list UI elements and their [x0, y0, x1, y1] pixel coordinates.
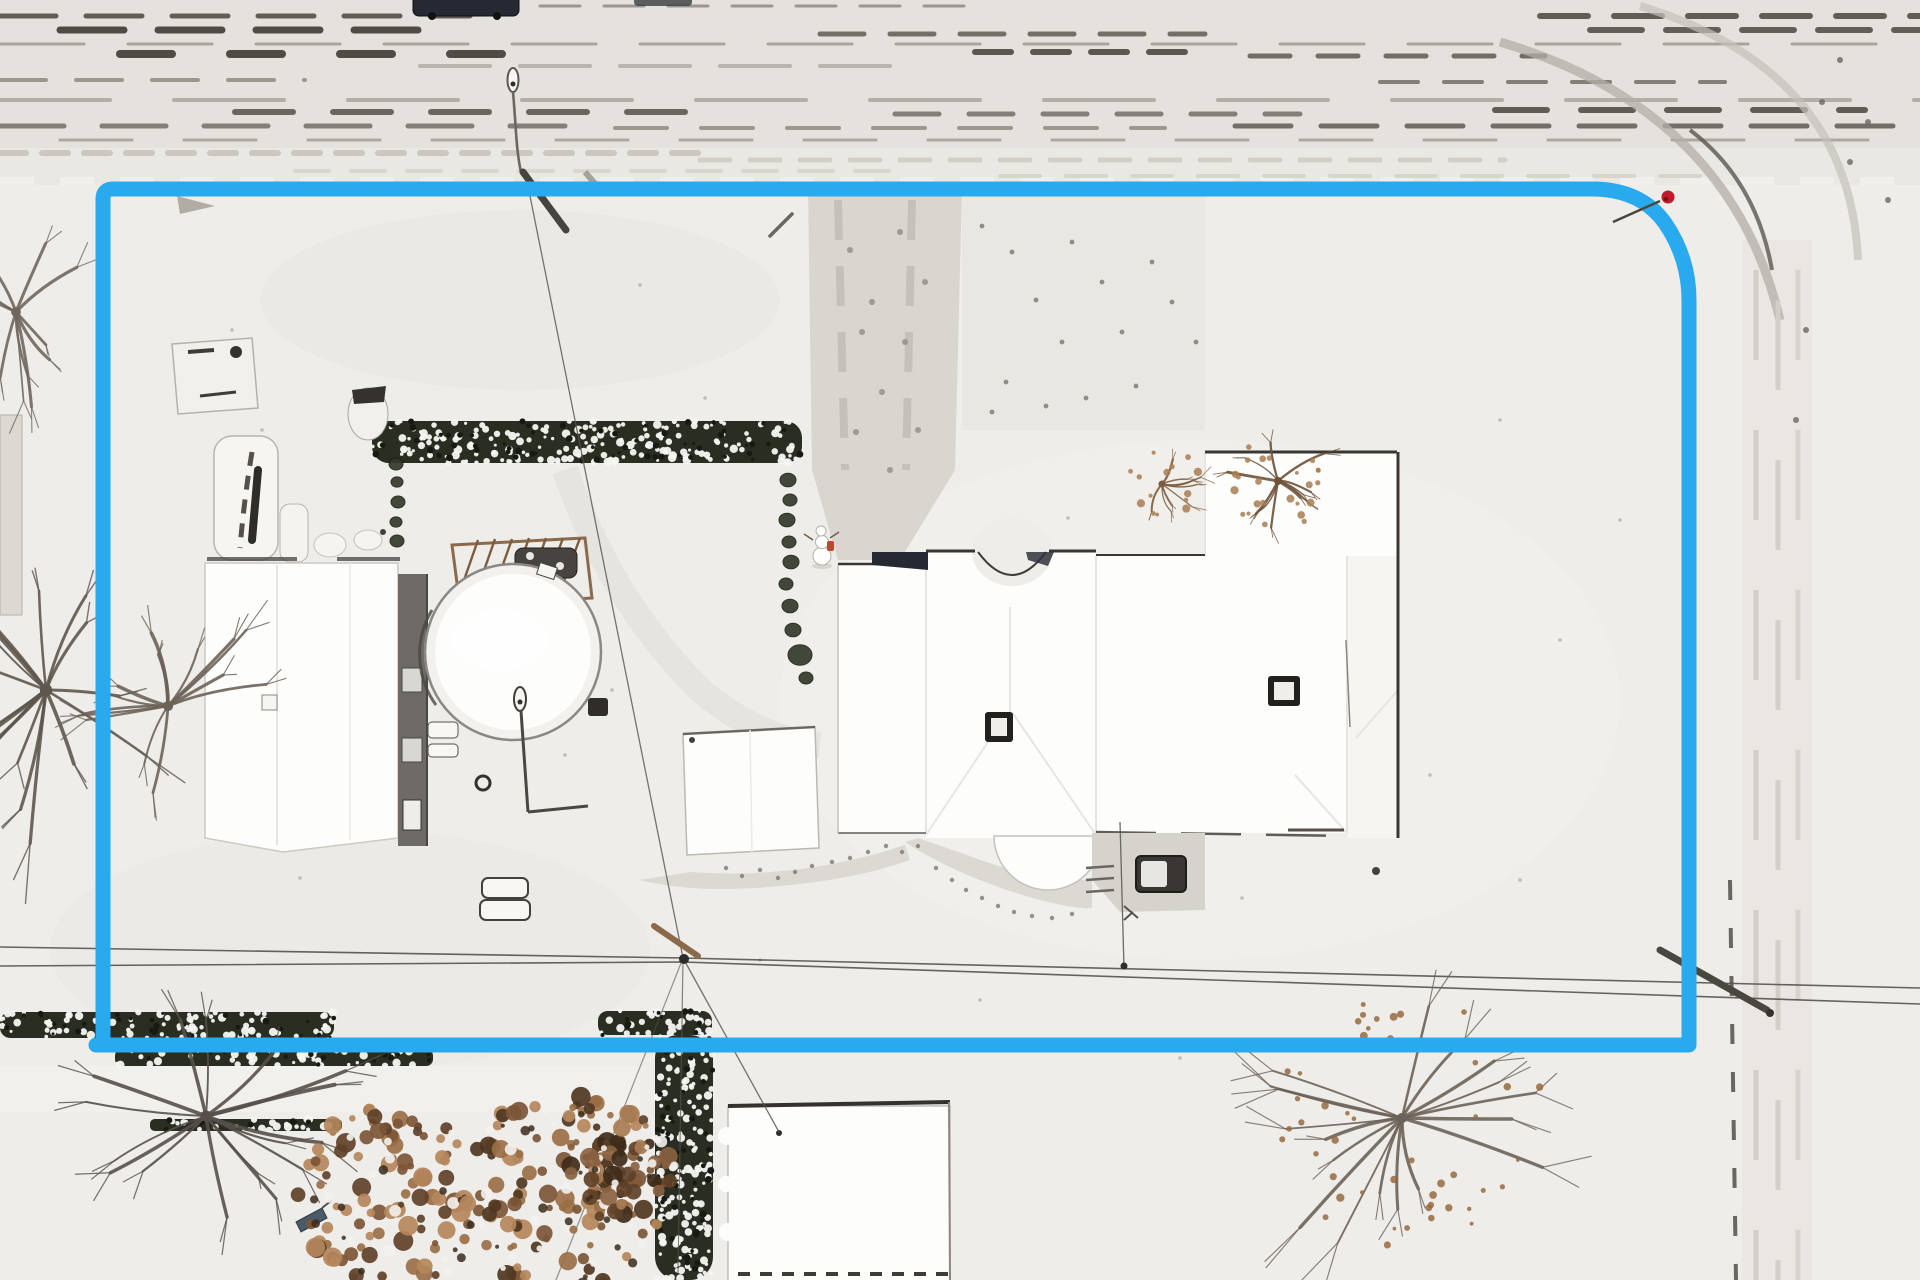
- aerial-photo-stage: [0, 0, 1920, 1280]
- barn-door: [403, 800, 421, 830]
- hedge-upper: [371, 418, 803, 467]
- bottom-outbuilding: [718, 1102, 950, 1280]
- aerial-photo: [0, 0, 1920, 1280]
- hedge-road-left: [0, 1008, 337, 1040]
- yard-lamp-head: [514, 687, 526, 711]
- barn-roof: [205, 563, 398, 852]
- house-rear-wing: [1205, 452, 1397, 556]
- garden-shed: [683, 727, 819, 855]
- snow-covered-equipment: [280, 504, 308, 562]
- distant-vehicle: [634, 0, 692, 6]
- utility-pole: [679, 954, 689, 964]
- barn: [205, 559, 428, 852]
- snowman-scarf: [827, 541, 834, 551]
- snow-covered-camper: [214, 436, 278, 560]
- roof-vent: [262, 695, 277, 710]
- neighbor-building-edge: [0, 415, 22, 615]
- utility-pole: [1121, 963, 1128, 970]
- hedge-mid-bottom: [598, 1008, 713, 1037]
- survey-marker: [1662, 191, 1675, 204]
- pool-pump: [588, 698, 608, 716]
- picnic-table: [480, 878, 530, 920]
- top-road: [0, 0, 1920, 185]
- house-left-wing: [838, 565, 926, 833]
- small-table: [428, 722, 458, 738]
- snow-covered-trailer: [172, 338, 258, 414]
- street-light-head: [508, 68, 519, 92]
- barn-window: [402, 738, 422, 762]
- barn-window: [402, 668, 422, 692]
